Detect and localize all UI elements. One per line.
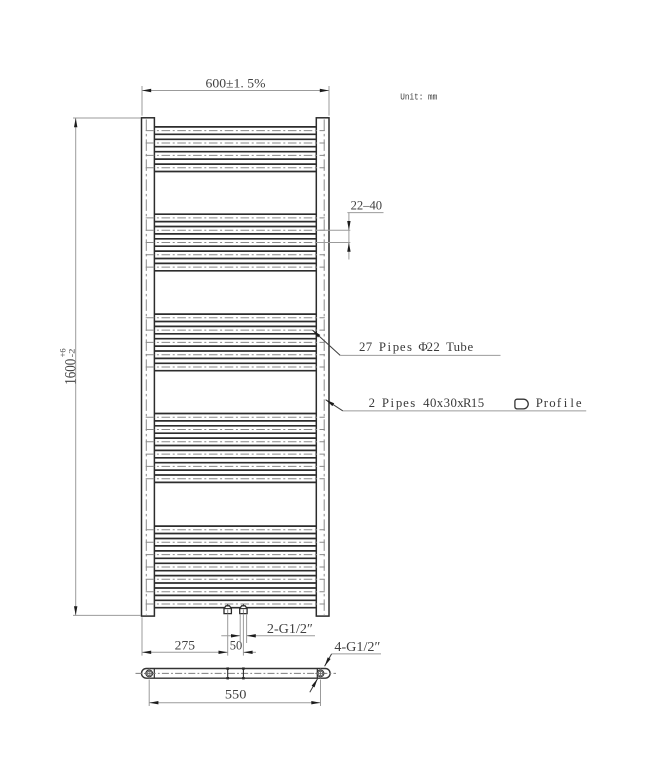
- svg-text:275: 275: [175, 638, 195, 653]
- svg-text:550: 550: [225, 687, 247, 702]
- svg-text:27 Pipes Φ22 Tube: 27 Pipes Φ22 Tube: [359, 340, 474, 354]
- svg-text:Unit: mm: Unit: mm: [400, 92, 437, 103]
- svg-text:22–40: 22–40: [351, 198, 383, 213]
- svg-text:4-G1/2″: 4-G1/2″: [334, 639, 380, 654]
- svg-text:Profile: Profile: [536, 396, 582, 410]
- svg-text:2 Pipes 40x30xR15: 2 Pipes 40x30xR15: [369, 396, 485, 410]
- svg-text:1600: 1600: [62, 358, 79, 384]
- svg-text:600±1. 5%: 600±1. 5%: [206, 75, 266, 90]
- svg-text:2-G1/2″: 2-G1/2″: [267, 621, 313, 636]
- svg-text:-2: -2: [67, 348, 77, 357]
